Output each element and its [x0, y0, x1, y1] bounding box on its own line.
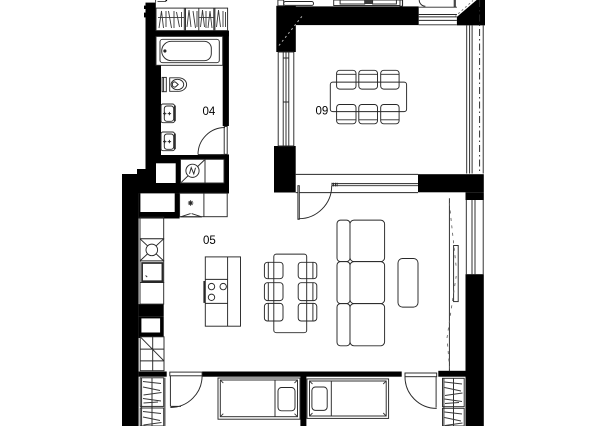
svg-text:09: 09 — [316, 106, 329, 118]
svg-text:05: 05 — [203, 235, 216, 247]
svg-text:04: 04 — [203, 106, 216, 118]
